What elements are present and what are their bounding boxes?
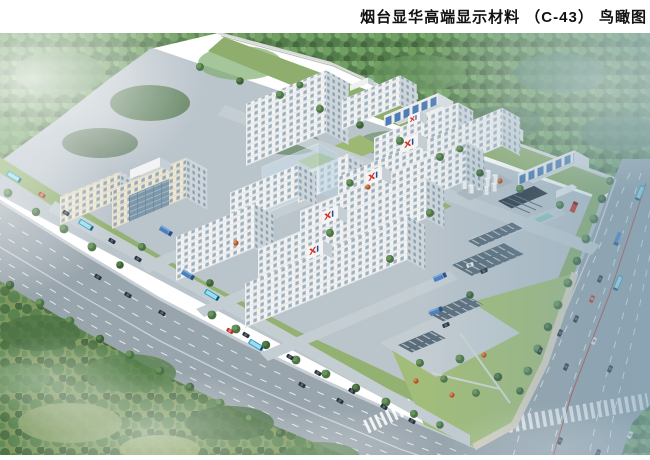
page-title: 烟台显华高端显示材料 （C-43） 鸟瞰图 [0,6,647,27]
birdseye-rendering [0,33,650,455]
page: 烟台显华高端显示材料 （C-43） 鸟瞰图 [0,0,650,460]
